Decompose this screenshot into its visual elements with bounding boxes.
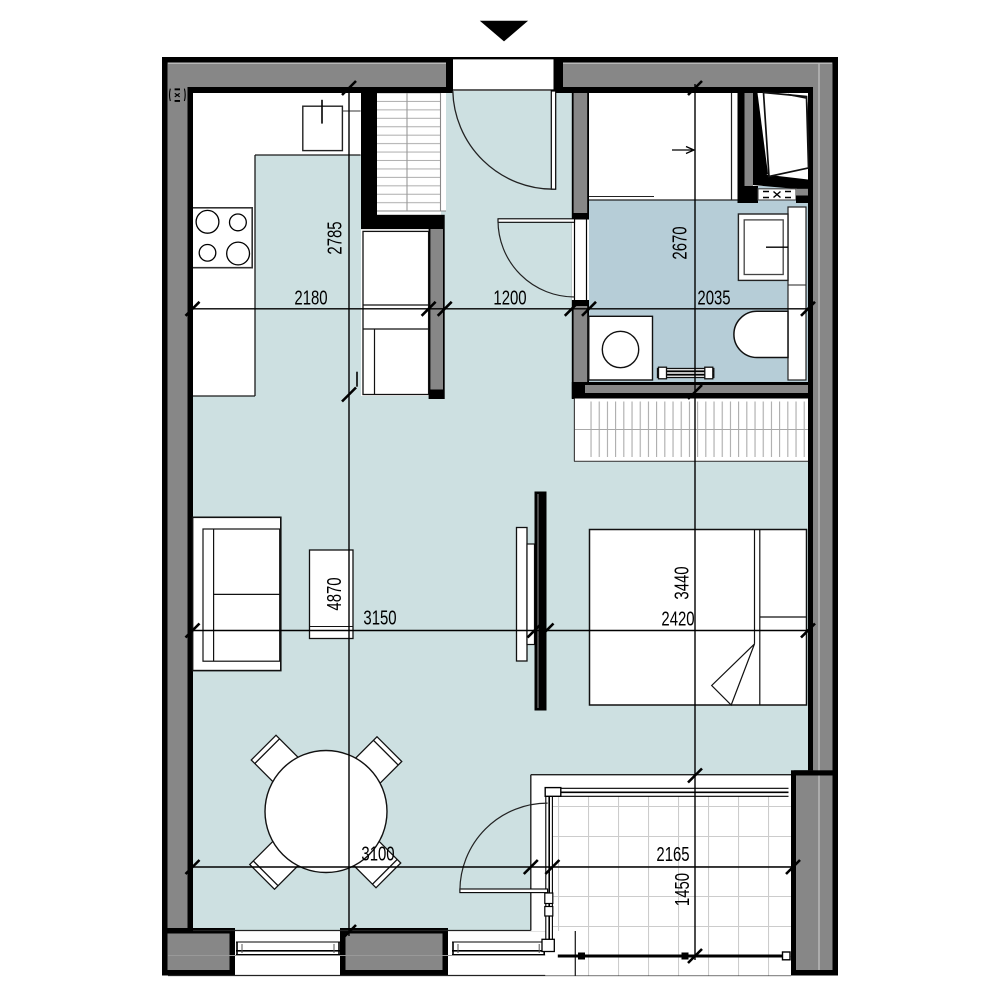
svg-text:2165: 2165: [656, 843, 689, 866]
svg-text:2670: 2670: [668, 226, 691, 259]
svg-text:4870: 4870: [323, 577, 346, 610]
svg-text:2785: 2785: [323, 221, 346, 254]
svg-text:1450: 1450: [671, 873, 694, 906]
svg-text:2420: 2420: [661, 607, 694, 630]
svg-text:3150: 3150: [363, 606, 396, 629]
svg-text:3100: 3100: [361, 842, 394, 865]
svg-text:3440: 3440: [670, 566, 693, 599]
svg-text:2180: 2180: [294, 286, 327, 309]
svg-text:2035: 2035: [697, 286, 730, 309]
svg-text:1200: 1200: [493, 286, 526, 309]
